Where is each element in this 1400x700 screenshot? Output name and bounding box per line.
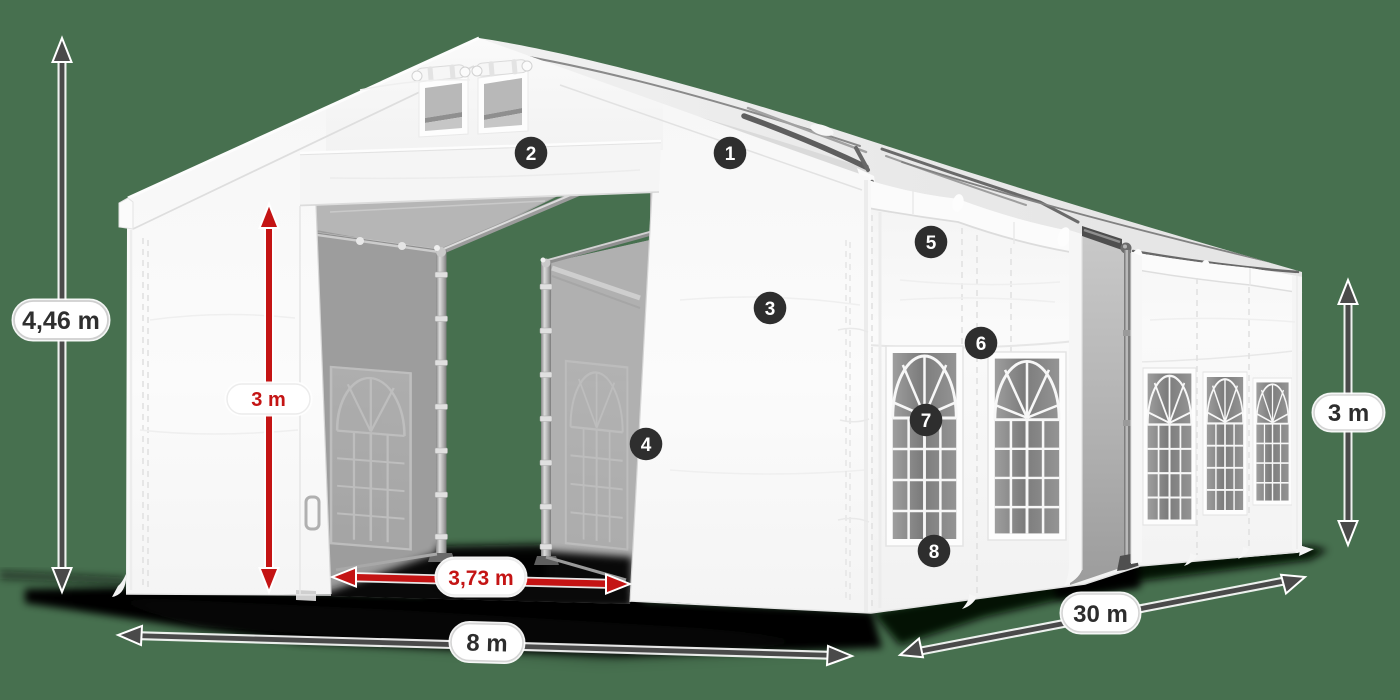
svg-text:3,73 m: 3,73 m (448, 567, 513, 590)
svg-text:3: 3 (765, 299, 776, 320)
svg-text:5: 5 (926, 233, 937, 254)
svg-text:4,46 m: 4,46 m (22, 307, 100, 335)
svg-text:30 m: 30 m (1073, 601, 1128, 628)
svg-text:7: 7 (921, 411, 932, 432)
svg-text:8 m: 8 m (466, 629, 508, 657)
svg-text:2: 2 (526, 144, 537, 165)
svg-text:6: 6 (976, 334, 987, 355)
svg-text:4: 4 (641, 435, 652, 456)
svg-text:8: 8 (929, 542, 940, 563)
svg-text:3 m: 3 m (251, 389, 285, 411)
svg-text:1: 1 (725, 144, 736, 165)
svg-text:3 m: 3 m (1328, 400, 1369, 427)
